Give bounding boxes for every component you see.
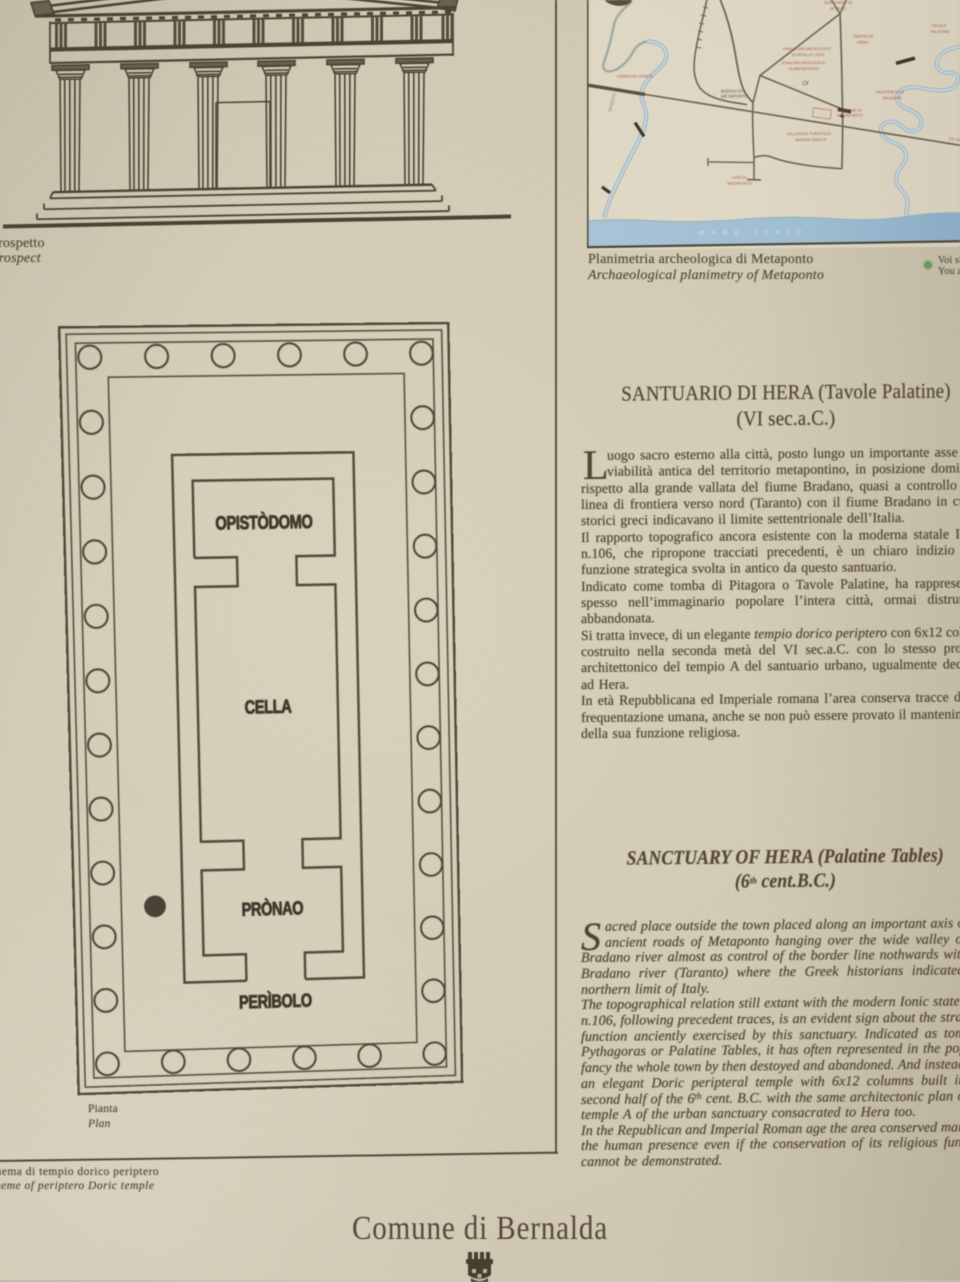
svg-text:CELLA: CELLA: [244, 695, 292, 718]
svg-text:PERÌBOLO: PERÌBOLO: [239, 989, 312, 1013]
svg-text:PRÒNAO: PRÒNAO: [241, 897, 303, 920]
svg-text:OPISTÒDOMO: OPISTÒDOMO: [215, 510, 313, 534]
